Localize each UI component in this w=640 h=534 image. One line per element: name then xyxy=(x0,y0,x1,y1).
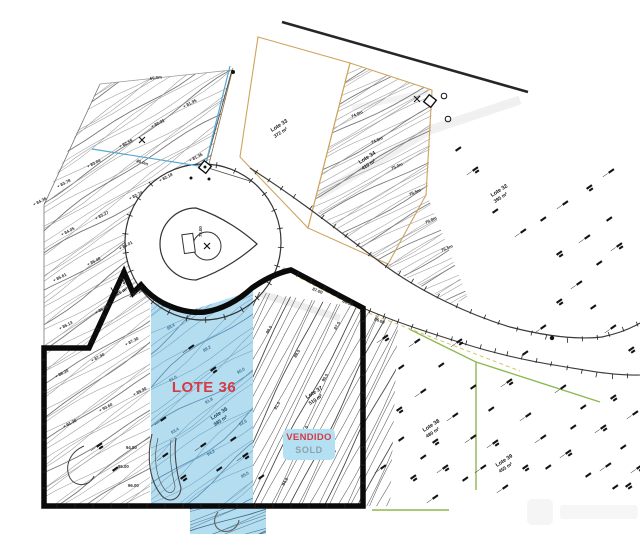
survey-mark xyxy=(466,166,480,178)
contour-elevation-label: 75.00 xyxy=(198,226,203,237)
survey-mark xyxy=(455,146,462,151)
survey-mark xyxy=(602,168,614,177)
survey-mark-leader xyxy=(579,239,584,242)
survey-mark xyxy=(590,304,597,309)
survey-mark-dash xyxy=(398,436,405,441)
contour-elevation-label: + 86.13 xyxy=(58,320,74,331)
survey-mark-leader xyxy=(487,444,492,447)
survey-mark-dash xyxy=(610,324,617,329)
survey-mark xyxy=(604,324,616,333)
survey-mark-leader xyxy=(501,383,506,386)
contour-line xyxy=(328,322,458,534)
survey-mark xyxy=(408,338,420,347)
contour-line xyxy=(403,361,535,534)
survey-mark xyxy=(578,234,590,243)
survey-mark xyxy=(486,439,500,451)
contour-elevation-label: 60.0m xyxy=(149,74,162,81)
survey-mark xyxy=(559,449,573,461)
survey-mark-dash xyxy=(562,200,569,205)
contour-line xyxy=(359,313,476,534)
survey-mark-leader xyxy=(560,454,565,457)
survey-mark-dash xyxy=(596,260,603,265)
contour-line xyxy=(402,360,533,534)
survey-mark-dash xyxy=(462,476,469,481)
contour-elevation-label: 96.00 xyxy=(128,483,139,488)
survey-mark xyxy=(258,474,265,479)
survey-mark-dash xyxy=(540,324,547,329)
contour-elevation-label: 94.0 xyxy=(281,476,290,486)
survey-mark xyxy=(438,362,445,367)
survey-mark xyxy=(610,394,618,402)
survey-mark-dash xyxy=(636,464,640,469)
survey-mark-leader xyxy=(467,171,472,174)
survey-mark xyxy=(420,454,427,459)
survey-mark-leader xyxy=(595,429,600,432)
survey-mark xyxy=(610,242,624,254)
contour-elevation-label: + 81.95 xyxy=(182,98,198,109)
survey-line-left xyxy=(44,84,100,348)
contour-line xyxy=(0,0,207,196)
survey-mark xyxy=(594,424,608,436)
survey-mark xyxy=(436,464,450,476)
survey-mark-dash xyxy=(584,234,591,239)
watermark-logo xyxy=(527,499,638,525)
survey-mark xyxy=(540,216,547,221)
survey-mark-dash xyxy=(492,208,499,213)
survey-mark-dash xyxy=(560,384,567,389)
survey-mark-dash xyxy=(605,462,612,467)
survey-mark xyxy=(462,476,469,481)
survey-mark xyxy=(585,472,592,477)
survey-mark-dash xyxy=(420,388,427,393)
survey-mark-leader xyxy=(627,415,632,418)
watermark-mark xyxy=(527,499,553,525)
survey-mark xyxy=(570,424,577,429)
survey-mark-dash xyxy=(540,216,547,221)
contour-elevation-label: 89.0 xyxy=(293,348,302,358)
contour-line xyxy=(395,356,524,534)
survey-mark-dash xyxy=(520,228,527,233)
survey-mark xyxy=(519,412,531,421)
x-marker xyxy=(139,137,145,143)
contour-elevation-label: 94.00 xyxy=(126,445,137,450)
survey-mark-leader xyxy=(605,329,610,332)
lot-36-title: LOTE 36 xyxy=(154,379,254,396)
survey-mark xyxy=(556,298,564,306)
survey-mark xyxy=(620,444,627,449)
survey-mark-dash xyxy=(580,404,587,409)
contour-line xyxy=(258,287,389,534)
survey-mark-dash xyxy=(438,362,445,367)
survey-mark xyxy=(580,404,587,409)
contour-line xyxy=(388,352,518,534)
contour-line xyxy=(352,307,464,533)
survey-mark-leader xyxy=(497,489,502,492)
contour-elevation-label: 91.0 xyxy=(273,400,282,410)
survey-line-top xyxy=(100,70,232,84)
survey-mark xyxy=(488,406,495,411)
survey-mark-dash xyxy=(570,424,577,429)
survey-mark xyxy=(464,434,476,443)
survey-mark-leader xyxy=(571,285,576,288)
survey-mark-leader xyxy=(611,247,616,250)
survey-mark xyxy=(414,388,426,397)
survey-mark-leader xyxy=(535,329,540,332)
sold-badge-en: SOLD xyxy=(283,444,335,456)
survey-mark-leader xyxy=(557,205,562,208)
contour-line xyxy=(312,313,441,534)
contour-elevation-label: + 85.61 xyxy=(52,272,68,283)
contour-elevation-label: 86.00 xyxy=(374,316,386,325)
contour-elevation-label: 87.5 xyxy=(333,320,342,330)
marker-dot xyxy=(231,70,235,74)
survey-mark-dash xyxy=(455,146,462,151)
survey-mark-dash xyxy=(576,280,583,285)
survey-mark xyxy=(630,464,640,476)
survey-mark-dash xyxy=(608,168,615,173)
site-plan: + 84.36+ 83.78+ 83.04+ 82.59+ 82.31+ 81.… xyxy=(0,0,640,534)
circle-marker xyxy=(441,93,447,99)
survey-mark-dash xyxy=(525,412,532,417)
survey-mark xyxy=(545,464,552,469)
watermark-text-block xyxy=(560,505,638,519)
survey-mark-dash xyxy=(632,410,639,415)
island-structure xyxy=(182,233,196,253)
survey-mark xyxy=(398,364,405,369)
survey-mark-dash xyxy=(258,474,265,479)
contour-line xyxy=(27,317,479,534)
contour-line xyxy=(357,312,473,534)
survey-mark-dash xyxy=(540,434,547,439)
survey-mark xyxy=(626,410,638,419)
contour-elevation-label: 90.0 xyxy=(321,372,330,382)
marker-dot xyxy=(208,178,211,181)
green-utility-line xyxy=(409,329,476,490)
survey-mark xyxy=(514,228,526,237)
contour-elevation-label: + 89.90 xyxy=(132,386,148,397)
contour-elevation-label: + 88.20 xyxy=(54,368,70,379)
sold-badge-es: VENDIDO xyxy=(283,432,335,444)
survey-mark-dash xyxy=(398,364,405,369)
survey-mark xyxy=(599,462,611,471)
survey-mark-dash xyxy=(452,412,459,417)
hillshade-band xyxy=(318,100,520,196)
sold-badge: VENDIDO SOLD xyxy=(283,429,335,460)
survey-mark-leader xyxy=(409,343,414,346)
survey-mark xyxy=(410,474,418,482)
survey-mark xyxy=(534,434,546,443)
marker-dot xyxy=(550,336,554,340)
contour-elevation-label: + 84.36 xyxy=(32,196,48,207)
contour-line xyxy=(334,325,463,534)
survey-mark-leader xyxy=(555,389,560,392)
survey-mark xyxy=(492,208,499,213)
lot-edge-tan xyxy=(208,68,233,168)
contour-elevation-label: 74.5m xyxy=(370,135,383,145)
survey-mark-dash xyxy=(420,454,427,459)
survey-mark-dash xyxy=(480,464,487,469)
survey-mark-dash xyxy=(606,216,613,221)
survey-mark-leader xyxy=(631,469,636,472)
survey-mark-dash xyxy=(502,484,509,489)
survey-mark-leader xyxy=(535,439,540,442)
survey-mark xyxy=(556,200,568,209)
survey-mark-dash xyxy=(612,484,619,489)
survey-mark-dash xyxy=(488,406,495,411)
marker-dot xyxy=(204,166,207,169)
survey-mark-leader xyxy=(427,499,432,502)
survey-mark-leader xyxy=(515,233,520,236)
survey-mark xyxy=(596,260,603,265)
survey-mark-leader xyxy=(437,469,442,472)
survey-mark xyxy=(625,482,633,490)
survey-mark-dash xyxy=(620,444,627,449)
survey-mark xyxy=(500,378,514,390)
square-marker xyxy=(424,95,437,108)
survey-mark-dash xyxy=(545,464,552,469)
survey-mark-leader xyxy=(415,393,420,396)
contour-line xyxy=(290,302,420,534)
survey-mark xyxy=(398,436,405,441)
survey-mark xyxy=(586,184,594,192)
survey-mark-leader xyxy=(603,173,608,176)
survey-mark xyxy=(432,438,440,446)
survey-mark xyxy=(426,494,438,503)
survey-mark xyxy=(496,484,508,493)
contour-elevation-label: 75.5m xyxy=(408,187,421,197)
contour-elevation-label: + 85.48 xyxy=(86,256,102,267)
survey-mark-leader xyxy=(447,417,452,420)
survey-mark xyxy=(396,406,404,414)
contour-line xyxy=(280,298,412,534)
survey-mark xyxy=(570,280,582,289)
survey-mark-dash xyxy=(590,304,597,309)
contour-elevation-label: 95.00 xyxy=(118,464,129,469)
survey-mark xyxy=(446,412,458,421)
survey-mark xyxy=(556,250,564,258)
contour-elevation-label: 74.0m xyxy=(350,109,363,119)
contour-line xyxy=(369,315,480,534)
survey-mark xyxy=(606,216,613,221)
survey-mark-dash xyxy=(585,472,592,477)
survey-mark xyxy=(612,484,619,489)
survey-mark-leader xyxy=(600,467,605,470)
survey-mark-leader xyxy=(520,417,525,420)
survey-mark-leader xyxy=(465,439,470,442)
survey-mark xyxy=(522,464,530,472)
survey-mark-dash xyxy=(414,338,421,343)
contour-elevation-label: + 91.30 xyxy=(62,418,78,429)
marker-dot xyxy=(190,177,193,180)
survey-mark-dash xyxy=(432,494,439,499)
contour-elevation-label: 75.0m xyxy=(390,161,403,171)
